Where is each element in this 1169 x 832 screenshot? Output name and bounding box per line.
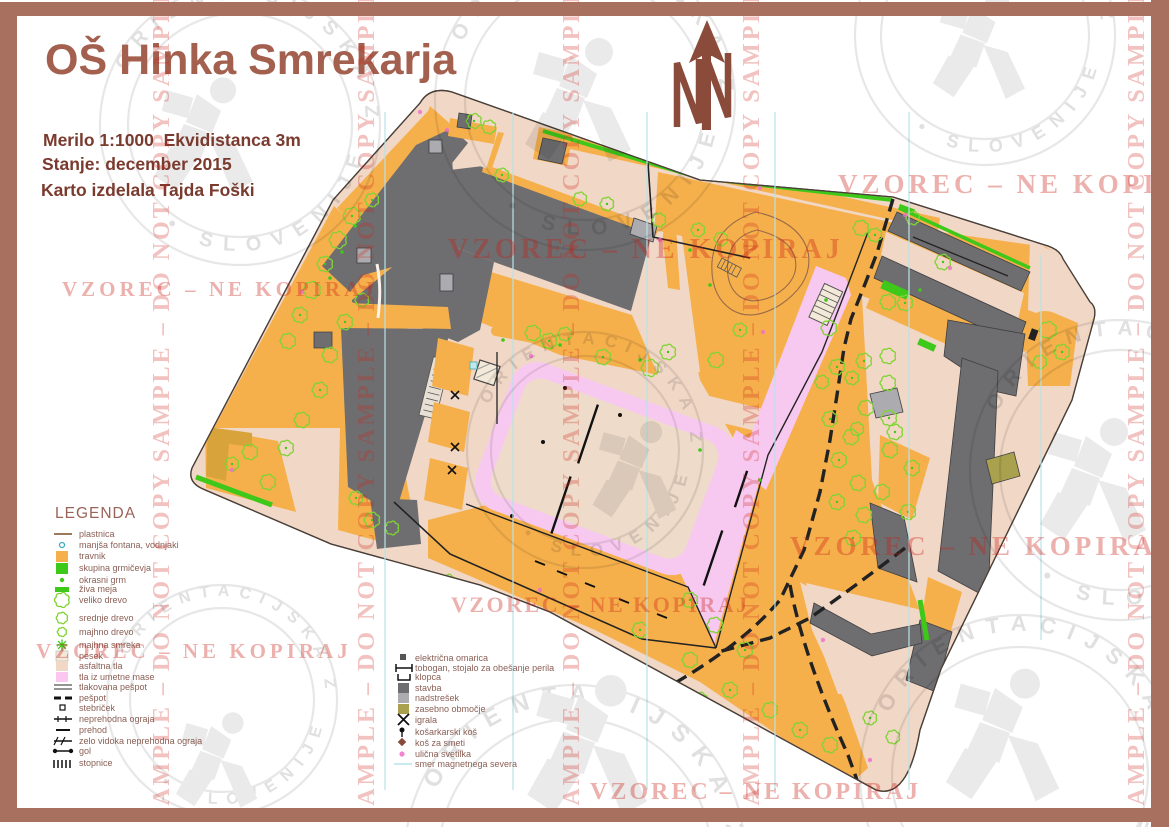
svg-text:smer magnetnega severa: smer magnetnega severa <box>415 759 517 769</box>
svg-text:koš za smeti: koš za smeti <box>415 738 465 748</box>
svg-text:stebriček: stebriček <box>79 703 116 713</box>
svg-text:VZOREC – NE KOPIRAJ: VZOREC – NE KOPIRAJ <box>790 531 1169 561</box>
svg-text:Stanje: december 2015: Stanje: december 2015 <box>42 154 232 174</box>
svg-text:zelo vidoka neprehodna ograja: zelo vidoka neprehodna ograja <box>79 736 202 746</box>
svg-text:živa meja: živa meja <box>79 584 117 594</box>
svg-text:neprehodna ograja: neprehodna ograja <box>79 714 155 724</box>
svg-text:VZOREC – NE KOPIRAJ: VZOREC – NE KOPIRAJ <box>838 169 1169 199</box>
svg-text:igrala: igrala <box>415 715 437 725</box>
svg-text:nadstrešek: nadstrešek <box>415 693 460 703</box>
svg-text:travnik: travnik <box>79 551 106 561</box>
svg-text:VZOREC – NE KOPIRAJ: VZOREC – NE KOPIRAJ <box>451 592 750 617</box>
svg-text:OŠ Hinka Smrekarja: OŠ Hinka Smrekarja <box>45 35 457 84</box>
svg-text:gol: gol <box>79 746 91 756</box>
svg-text:VZOREC – NE KOPIRAJ: VZOREC – NE KOPIRAJ <box>448 234 844 265</box>
svg-text:zasebno območje: zasebno območje <box>415 704 486 714</box>
svg-text:Karto izdelala Tajda Foški: Karto izdelala Tajda Foški <box>41 180 255 200</box>
svg-text:VZOREC – NE KOPIRAJ: VZOREC – NE KOPIRAJ <box>36 639 352 663</box>
svg-text:prehod: prehod <box>79 725 107 735</box>
svg-text:SAMPLE – DO NOT COPY SAMPLE: SAMPLE – DO NOT COPY SAMPLE – DO NOT COP… <box>149 0 175 822</box>
svg-text:veliko drevo: veliko drevo <box>79 595 127 605</box>
svg-text:plastnica: plastnica <box>79 529 115 539</box>
svg-text:VZOREC – NE KOPIRAJ: VZOREC – NE KOPIRAJ <box>590 779 921 805</box>
svg-text:VZOREC – NE KOPIRAJ: VZOREC – NE KOPIRAJ <box>62 277 378 301</box>
svg-text:SAMPLE – DO NOT COPY SAMPLE: SAMPLE – DO NOT COPY SAMPLE – DO NOT COP… <box>354 0 380 822</box>
svg-text:pešpot: pešpot <box>79 693 107 703</box>
svg-text:LEGENDA: LEGENDA <box>55 505 136 522</box>
svg-text:tla iz umetne mase: tla iz umetne mase <box>79 672 155 682</box>
svg-text:tlakovana pešpot: tlakovana pešpot <box>79 682 148 692</box>
svg-text:košarkarski koš: košarkarski koš <box>415 727 478 737</box>
svg-text:skupina grmičevja: skupina grmičevja <box>79 563 151 573</box>
svg-text:SAMPLE – DO NOT COPY SAMPLE: SAMPLE – DO NOT COPY SAMPLE – DO NOT COP… <box>559 0 585 822</box>
svg-text:SAMPLE – DO NOT COPY SAMPLE: SAMPLE – DO NOT COPY SAMPLE – DO NOT COP… <box>1124 0 1150 822</box>
svg-text:stopnice: stopnice <box>79 758 113 768</box>
svg-text:majhno drevo: majhno drevo <box>79 627 134 637</box>
svg-text:SAMPLE – DO NOT COPY SAMPLE: SAMPLE – DO NOT COPY SAMPLE – DO NOT COP… <box>739 0 765 822</box>
svg-text:klopca: klopca <box>415 672 441 682</box>
svg-text:električna omarica: električna omarica <box>415 653 488 663</box>
svg-text:srednje drevo: srednje drevo <box>79 613 134 623</box>
svg-text:ulična svetilka: ulična svetilka <box>415 749 471 759</box>
svg-text:stavba: stavba <box>415 683 442 693</box>
